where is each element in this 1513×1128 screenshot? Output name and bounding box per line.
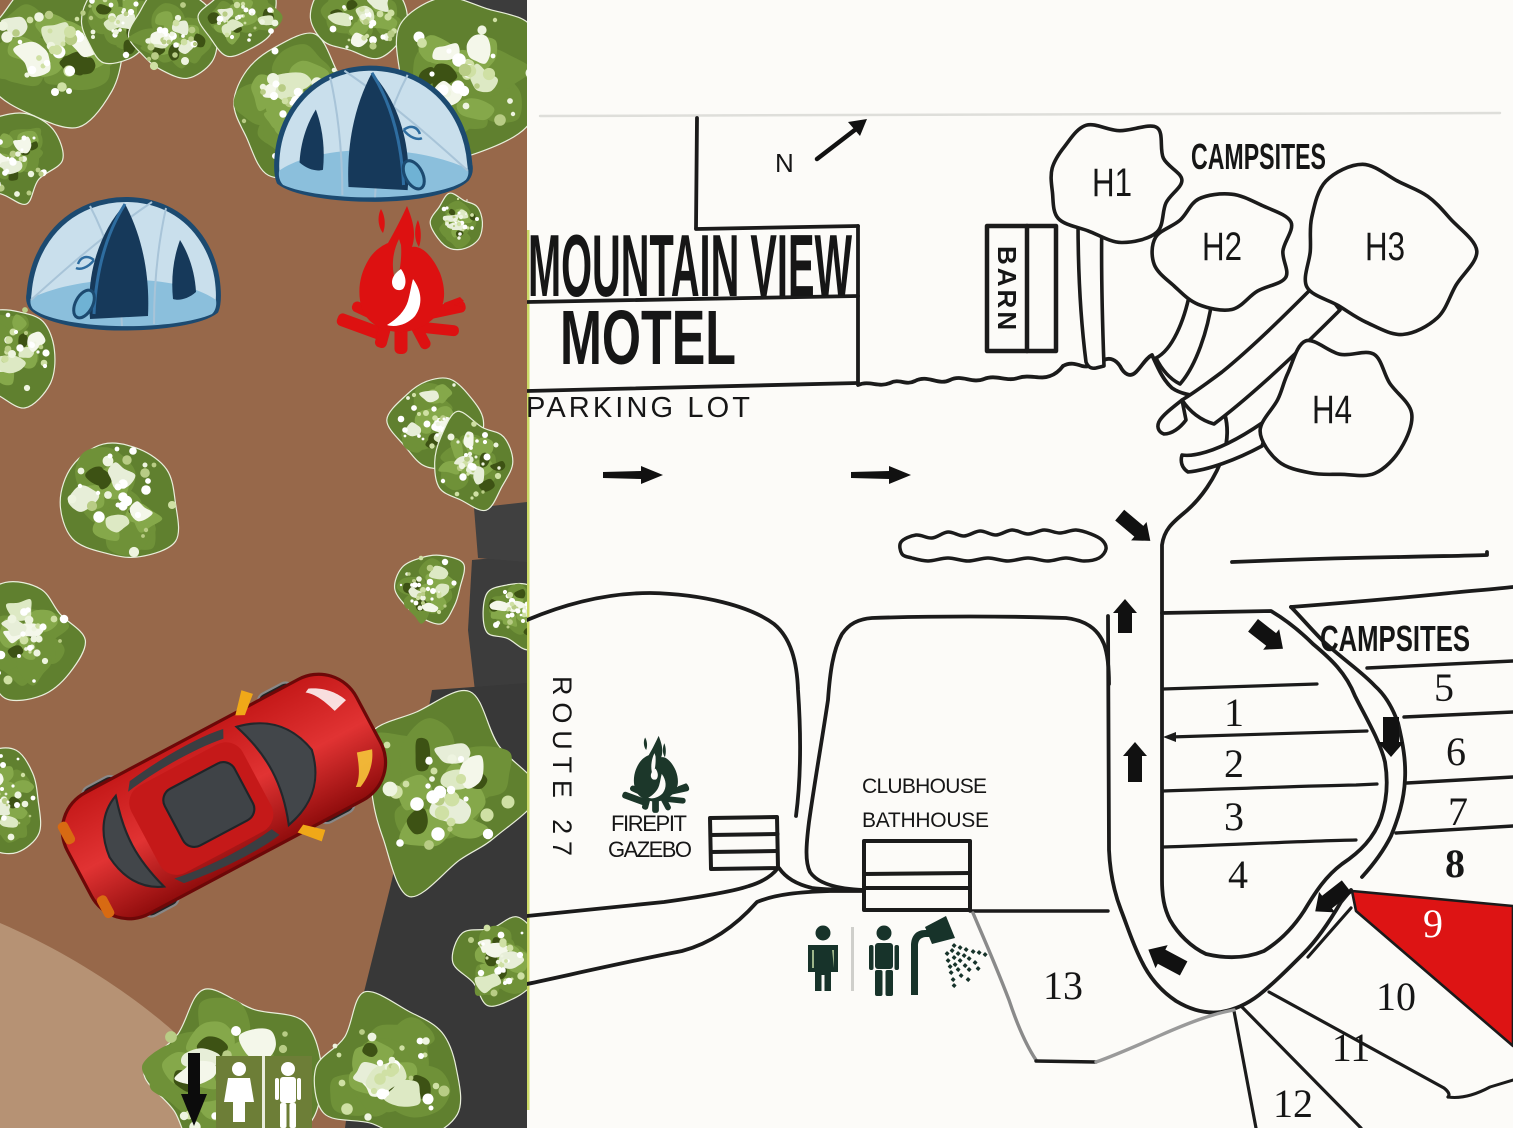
svg-text:H1: H1 bbox=[1092, 161, 1132, 205]
svg-text:FIREPIT: FIREPIT bbox=[611, 811, 687, 836]
svg-text:CLUBHOUSE: CLUBHOUSE bbox=[862, 775, 987, 798]
svg-text:H2: H2 bbox=[1202, 225, 1242, 269]
svg-text:12: 12 bbox=[1273, 1081, 1313, 1126]
svg-text:MOTEL: MOTEL bbox=[560, 295, 736, 381]
svg-text:5: 5 bbox=[1434, 665, 1454, 710]
svg-text:3: 3 bbox=[1224, 794, 1244, 839]
svg-text:10: 10 bbox=[1376, 974, 1416, 1019]
svg-text:1: 1 bbox=[1224, 690, 1244, 735]
svg-text:2: 2 bbox=[1224, 741, 1244, 786]
svg-text:7: 7 bbox=[1448, 789, 1468, 834]
svg-text:CAMPSITES: CAMPSITES bbox=[1320, 618, 1470, 659]
svg-text:8: 8 bbox=[1445, 841, 1465, 886]
svg-text:4: 4 bbox=[1228, 852, 1248, 897]
svg-text:BATHHOUSE: BATHHOUSE bbox=[862, 809, 989, 832]
svg-text:13: 13 bbox=[1043, 963, 1083, 1008]
svg-text:BARN: BARN bbox=[992, 246, 1022, 333]
svg-text:ROUTE 27: ROUTE 27 bbox=[547, 676, 577, 858]
svg-text:H4: H4 bbox=[1312, 388, 1352, 432]
svg-text:6: 6 bbox=[1446, 729, 1466, 774]
svg-text:H3: H3 bbox=[1365, 225, 1405, 269]
svg-text:N: N bbox=[775, 148, 794, 178]
svg-text:9: 9 bbox=[1423, 901, 1443, 946]
svg-text:11: 11 bbox=[1332, 1025, 1371, 1070]
svg-text:GAZEBO: GAZEBO bbox=[608, 837, 692, 862]
svg-text:CAMPSITES: CAMPSITES bbox=[1191, 136, 1326, 177]
svg-text:PARKING LOT: PARKING LOT bbox=[526, 392, 750, 424]
